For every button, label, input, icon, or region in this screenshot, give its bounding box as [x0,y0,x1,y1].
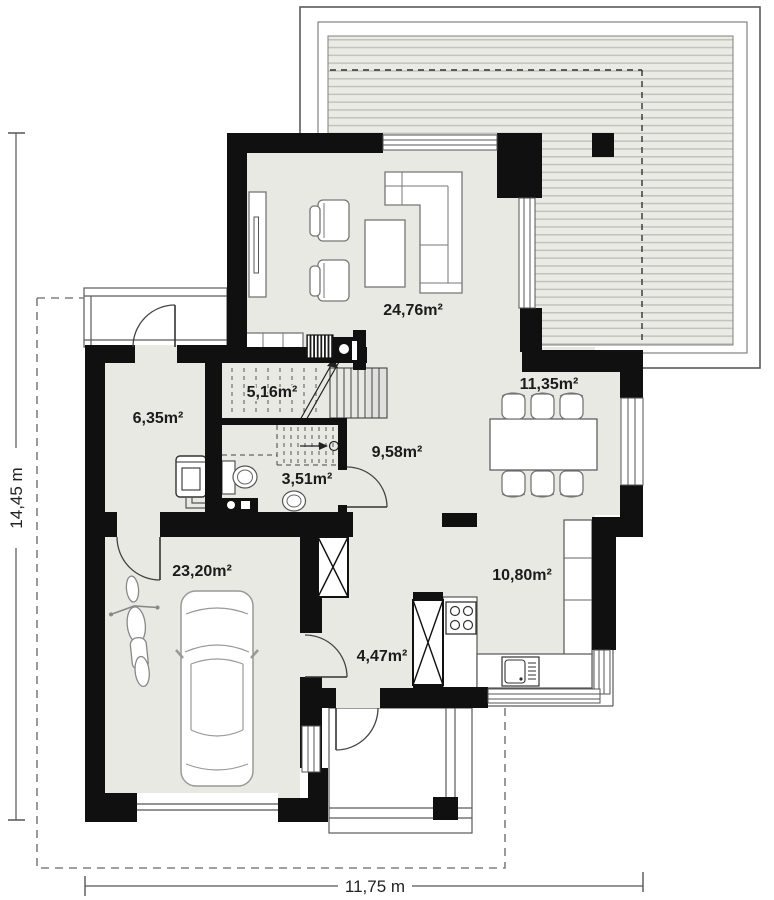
garage-porch-window [302,726,320,772]
tv-screen [254,217,259,273]
front-door [133,305,175,347]
flue-slot [352,341,357,360]
kitchen-area-label: 10,80m² [492,567,552,584]
wc-right-wall [338,418,347,470]
kitchen-right-wall [592,537,616,650]
coffee-table [365,220,405,287]
washbasin [233,466,257,488]
fireplace-hatch [307,335,333,358]
garage-bottom-right [278,798,328,822]
width-dimension-label: 11,75 m [345,877,405,896]
entrance-porch [84,288,227,347]
front-door-opening [135,345,177,363]
garage-area-label: 23,20m² [172,563,232,580]
dining-table [490,419,597,470]
dining-chairs-bottom [502,471,583,497]
corridor-area-label: 4,47m² [357,648,408,665]
armchair-1 [310,200,349,241]
dimension-horizontal: 11,75 m [85,872,643,896]
dining-furniture [490,393,597,497]
living-right-wall [520,308,542,352]
kitchen-sink [502,657,539,686]
garage-gate [137,793,278,822]
corridor-bottom-wall-left [322,688,336,708]
living-room-area-label: 24,76m² [383,302,443,319]
kitchen-tall-counter [564,520,592,655]
living-top-window [383,135,497,150]
dining-room-area-label: 11,35m² [520,376,579,393]
stove [446,602,476,634]
dining-window [621,398,643,485]
utility-right-wall [205,360,222,512]
sideboard [243,333,303,349]
living-ne-corner [497,133,542,198]
rear-door-opening [336,688,380,708]
floor-plan-drawing: 24,76m² 11,35m² 5,16m² 6,35m² 9,58m² 3,5… [0,0,774,900]
terrace-column [592,133,614,157]
kitchen-side-window [594,650,610,694]
dining-kitchen-jog [592,517,630,537]
hall-area-label: 9,58m² [372,444,423,461]
terrace-door-window [519,198,535,308]
stair-vestibule-area-label: 5,16m² [247,384,298,401]
living-left-wall [227,150,247,350]
entrance-porch-outline [84,288,227,347]
house-left-wall [85,345,105,822]
chimney-shaft-1 [318,537,348,597]
kitchen-bottom-window [488,689,600,703]
car [176,591,258,786]
entrance-porch-steps [84,296,227,347]
dining-right-wall-upper [620,372,643,398]
chimney-shaft-2 [413,592,443,697]
corridor-door-opening [300,633,322,677]
dining-top-wall [522,350,643,372]
height-dimension-label: 14,45 m [7,467,26,528]
porch-column [433,797,458,820]
wc-top-wall [222,418,347,425]
hall-wall-stub [442,513,477,527]
utility-room-area-label: 6,35m² [133,410,184,427]
living-top-wall [227,133,383,153]
armchair-2 [310,260,349,301]
wc-shaft [220,498,258,512]
garage-door-opening [117,512,160,537]
toilet [283,491,306,511]
wc-door-stub [338,505,347,514]
stair-upper-shade [367,368,387,418]
floor-plan-page: 24,76m² 11,35m² 5,16m² 6,35m² 9,58m² 3,5… [0,0,774,900]
rear-exit-door [336,708,378,750]
dimension-vertical: 14,45 m [7,133,26,820]
wc-area-label: 3,51m² [282,471,333,488]
dining-chairs-top [502,393,583,419]
flue-circle [339,344,349,354]
